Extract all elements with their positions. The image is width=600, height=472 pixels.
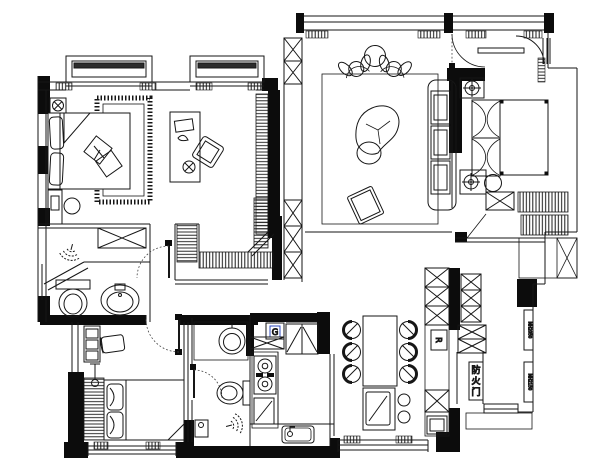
door-master-bedroom xyxy=(449,34,485,69)
kitchen-sink xyxy=(282,426,314,443)
shower-head-icon xyxy=(223,413,244,437)
riser-box: R xyxy=(431,330,447,350)
desk-chair xyxy=(191,135,224,168)
bay-window xyxy=(190,56,264,86)
door-bedroom-study xyxy=(137,240,172,278)
walk-in-closet xyxy=(177,198,302,278)
ottoman xyxy=(347,186,384,225)
room-living xyxy=(322,46,456,225)
ac-unit-icon xyxy=(50,98,66,113)
desk xyxy=(170,112,200,182)
desk-chair xyxy=(100,334,125,353)
canopy-bed xyxy=(472,100,548,176)
toilet xyxy=(56,280,90,317)
console-shelf xyxy=(478,48,524,53)
wall-code-label: MH2150 xyxy=(528,374,533,391)
floor-drain xyxy=(195,420,208,437)
dresser xyxy=(48,190,80,224)
room-dining xyxy=(344,316,417,430)
clothes-rail xyxy=(254,198,268,248)
sink xyxy=(194,322,248,360)
desk xyxy=(84,326,100,362)
curtain-coil-icon xyxy=(538,58,545,82)
clothes-rail xyxy=(177,224,197,262)
fire-door-char: 门 xyxy=(471,386,480,398)
floor-plan-drawing: G xyxy=(0,0,600,472)
wall-code-box: MH2050 MH2150 xyxy=(524,310,533,402)
fire-door-label-box: 防 火 门 xyxy=(469,362,483,400)
doors xyxy=(137,34,485,398)
riser-label: R xyxy=(434,337,443,343)
room-bathroom-2 xyxy=(194,322,250,437)
double-bed xyxy=(104,380,184,440)
entry-door-threshold xyxy=(466,404,532,429)
coffee-table xyxy=(356,106,399,164)
bay-window xyxy=(66,56,152,86)
sideboard xyxy=(363,388,410,430)
room-kitchen: G xyxy=(250,323,318,443)
entry-area: R 防 火 门 MH2050 MH2150 xyxy=(425,268,533,436)
shower-head-icon xyxy=(59,241,83,262)
wall-code-label: MH2050 xyxy=(528,322,533,339)
sink xyxy=(101,284,139,315)
fire-door-char: 火 xyxy=(471,376,480,387)
shoe-cabinet xyxy=(458,274,486,353)
nightstand xyxy=(460,170,502,194)
fire-door-char: 防 xyxy=(471,364,480,376)
duct-shaft xyxy=(284,200,302,278)
room-bedroom-2 xyxy=(84,326,184,440)
floor-plan: G xyxy=(0,0,600,472)
ceiling-lamp-icon xyxy=(463,79,481,97)
room-bedroom-study xyxy=(48,94,268,234)
wardrobe xyxy=(84,378,104,440)
double-bed xyxy=(48,113,130,189)
clothes-rail xyxy=(199,252,273,268)
armchair xyxy=(335,52,376,82)
dining-table xyxy=(363,316,397,386)
duct-shaft xyxy=(284,38,302,84)
door-bedroom-2 xyxy=(146,314,182,355)
side-table xyxy=(365,46,386,67)
stool xyxy=(64,198,80,214)
cutting-board xyxy=(254,398,274,424)
wardrobe xyxy=(467,192,568,238)
duct-column: R xyxy=(425,268,449,436)
sofa xyxy=(428,80,456,210)
stool xyxy=(485,175,502,192)
armchair xyxy=(374,52,415,81)
storage-cabinet xyxy=(98,228,146,248)
room-bathroom-1 xyxy=(56,228,146,317)
refrigerator xyxy=(286,324,318,354)
